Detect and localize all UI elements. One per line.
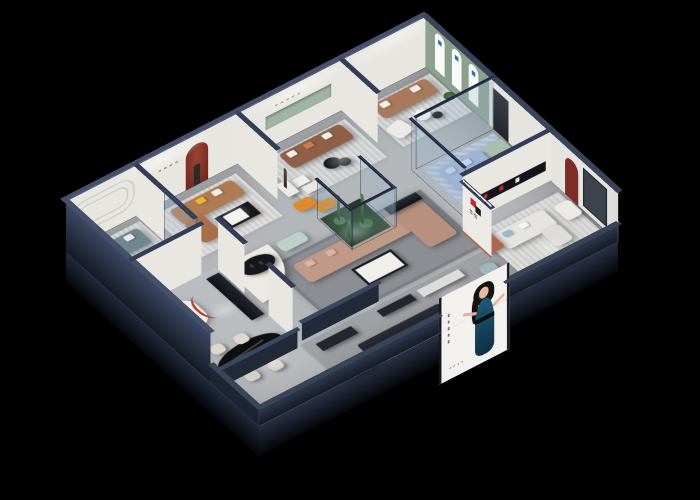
arch-sculpture [194, 163, 200, 187]
dining-chair [208, 342, 228, 356]
ceiling-light-pool [203, 296, 246, 324]
poster-caption-marks [449, 360, 463, 369]
pillow-blush [304, 259, 317, 267]
black-bench [377, 294, 417, 317]
isometric-scene: 华悦 华悦 [66, 67, 618, 426]
decor-bottle [248, 263, 255, 268]
banner-logo-mark [455, 54, 459, 62]
banner-logo-mark [438, 39, 442, 47]
showroom-render-stage: 华悦 华悦 [0, 0, 700, 500]
banner-logo-mark [472, 70, 476, 78]
decor-bottle [257, 260, 264, 265]
dining-chair [231, 332, 251, 346]
